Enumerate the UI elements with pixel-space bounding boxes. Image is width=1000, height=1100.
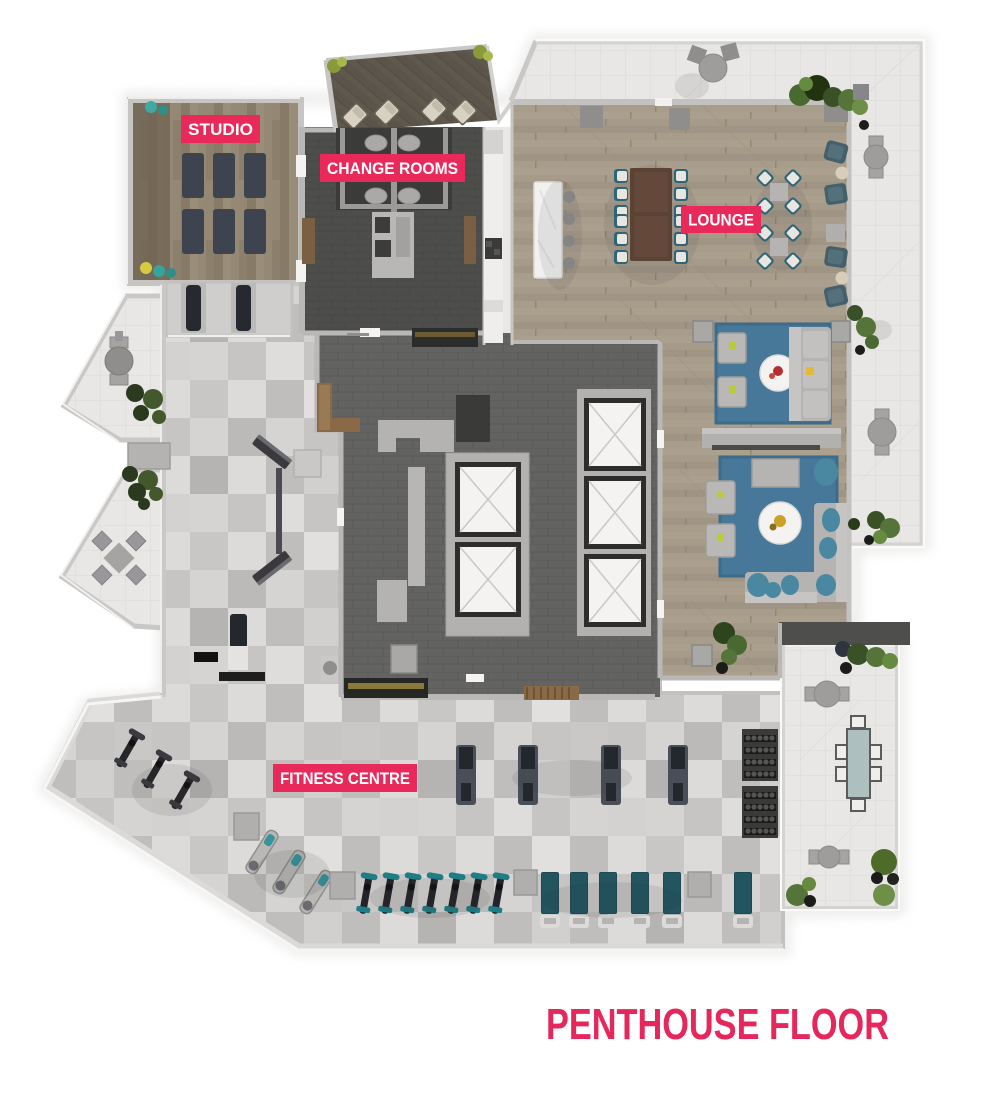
svg-text:PENTHOUSE FLOOR: PENTHOUSE FLOOR [546, 1000, 889, 1049]
svg-text:STUDIO: STUDIO [188, 120, 253, 139]
svg-text:LOUNGE: LOUNGE [688, 211, 754, 230]
svg-text:FITNESS CENTRE: FITNESS CENTRE [280, 769, 410, 788]
svg-text:CHANGE ROOMS: CHANGE ROOMS [327, 159, 458, 178]
